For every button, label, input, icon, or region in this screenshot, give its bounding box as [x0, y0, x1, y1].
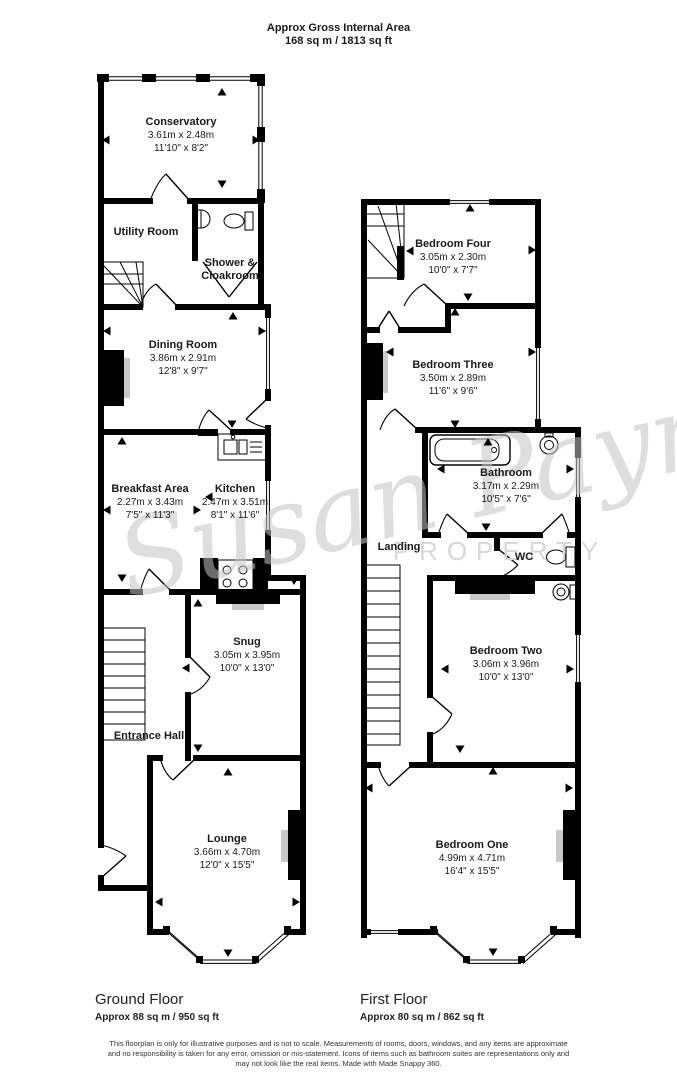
room-name: Dining Room [103, 339, 263, 352]
room-name: Bedroom Four [388, 238, 518, 251]
ground-floor-area: Approx 88 sq m / 950 sq ft [95, 1012, 219, 1023]
room-dims-imperial: 10'0" x 7'7" [388, 264, 518, 277]
kitchen-sink-icon [198, 429, 266, 460]
room-name: Entrance Hall [92, 730, 206, 743]
room-name: Snug [183, 636, 311, 649]
room-name: Conservatory [101, 116, 261, 129]
room-name: Bedroom Two [441, 645, 571, 658]
room-dims-metric: 3.06m x 3.96m [441, 658, 571, 671]
room-label-snug: Snug 3.05m x 3.95m 10'0" x 13'0" [183, 636, 311, 675]
room-label-kitchen: Kitchen 2.47m x 3.51m 8'1" x 11'6" [171, 483, 299, 522]
room-name: Lounge [163, 833, 291, 846]
room-dims-metric: 3.86m x 2.91m [103, 352, 263, 365]
bedroom4-window [447, 201, 492, 204]
room-name: Kitchen [171, 483, 299, 496]
disclaimer-line-3: may not look like the real items. Made w… [0, 1059, 677, 1069]
room-label-dining: Dining Room 3.86m x 2.91m 12'8" x 9'7" [103, 339, 263, 378]
room-label-bedroom-one: Bedroom One 4.99m x 4.71m 16'4" x 15'5" [407, 839, 537, 878]
room-dims-imperial: 16'4" x 15'5" [407, 865, 537, 878]
bedroom1-chimney [563, 810, 578, 880]
room-label-wc: WC [506, 551, 542, 564]
room-dims-metric: 3.50m x 2.89m [388, 372, 518, 385]
room-dims-metric: 3.05m x 2.30m [388, 251, 518, 264]
room-dims-imperial: 8'1" x 11'6" [171, 509, 299, 522]
room-name: Bedroom Three [388, 359, 518, 372]
room-dims-imperial: 10'0" x 13'0" [441, 671, 571, 684]
disclaimer-line-2: and no responsibility is taken for any e… [0, 1049, 677, 1059]
room-label-shower-cloakroom: Shower & Cloakroom [189, 257, 271, 283]
room-label-bathroom: Bathroom 3.17m x 2.29m 10'5" x 7'6" [441, 467, 571, 506]
room-dims-imperial: 12'8" x 9'7" [103, 365, 263, 378]
bedroom2-window [577, 632, 580, 685]
room-label-entrance-hall: Entrance Hall [92, 730, 206, 743]
room-dims-imperial: 10'0" x 13'0" [183, 662, 311, 675]
room-dims-imperial: 11'10" x 8'2" [101, 142, 261, 155]
room-dims-imperial: 10'5" x 7'6" [441, 493, 571, 506]
room-dims-metric: 4.99m x 4.71m [407, 852, 537, 865]
straight-stairs-ground-icon [101, 628, 145, 740]
bedroom3-chimney [361, 343, 383, 400]
first-floor-area: Approx 80 sq m / 862 sq ft [360, 1012, 484, 1023]
room-label-bedroom-two: Bedroom Two 3.06m x 3.96m 10'0" x 13'0" [441, 645, 571, 684]
dining-window [267, 315, 270, 392]
room-dims-metric: 2.47m x 3.51m [171, 496, 299, 509]
room-name: Bedroom One [407, 839, 537, 852]
cloakroom-toilet-icon [224, 212, 253, 230]
room-name: WC [506, 551, 542, 564]
room-dims-metric: 3.61m x 2.48m [101, 129, 261, 142]
winder-stairs-ground-icon [101, 262, 143, 307]
room-name: Landing [357, 541, 441, 554]
room-label-bedroom-three: Bedroom Three 3.50m x 2.89m 11'6" x 9'6" [388, 359, 518, 398]
bedroom2-chimney [455, 581, 535, 594]
bedroom1-hearth [556, 830, 563, 862]
cloakroom-basin-icon [196, 210, 210, 228]
room-dims-imperial: 11'6" x 9'6" [388, 385, 518, 398]
room-dims-metric: 3.05m x 3.95m [183, 649, 311, 662]
room-name: Shower & [189, 257, 271, 270]
bedroom1-bay-window [430, 926, 557, 963]
room-name: Utility Room [96, 226, 196, 239]
room-dims-metric: 3.66m x 4.70m [163, 846, 291, 859]
floorplan-page: Approx Gross Internal Area 168 sq m / 18… [0, 0, 677, 1080]
disclaimer-line-1: This floorplan is only for illustrative … [0, 1039, 677, 1049]
room-name: Cloakroom [189, 270, 271, 283]
room-label-lounge: Lounge 3.66m x 4.70m 12'0" x 15'5" [163, 833, 291, 872]
disclaimer: This floorplan is only for illustrative … [0, 1039, 677, 1069]
straight-stairs-first-icon [364, 565, 400, 745]
first-floor-label: First Floor [360, 991, 428, 1008]
bedroom2-hearth [470, 594, 510, 600]
room-label-utility: Utility Room [96, 226, 196, 239]
room-dims-metric: 3.17m x 2.29m [441, 480, 571, 493]
room-label-landing: Landing [357, 541, 441, 554]
room-label-bedroom-four: Bedroom Four 3.05m x 2.30m 10'0" x 7'7" [388, 238, 518, 277]
room-dims-imperial: 12'0" x 15'5" [163, 859, 291, 872]
room-label-conservatory: Conservatory 3.61m x 2.48m 11'10" x 8'2" [101, 116, 261, 155]
room-name: Bathroom [441, 467, 571, 480]
lounge-bay-window [163, 926, 291, 963]
floorplan-canvas: Susan Payne PROPERTY [0, 0, 677, 1080]
bedroom2-basin-icon [553, 584, 578, 600]
ground-floor-label: Ground Floor [95, 991, 183, 1008]
bedroom1-side-window [368, 931, 401, 934]
snug-hearth [232, 604, 264, 610]
